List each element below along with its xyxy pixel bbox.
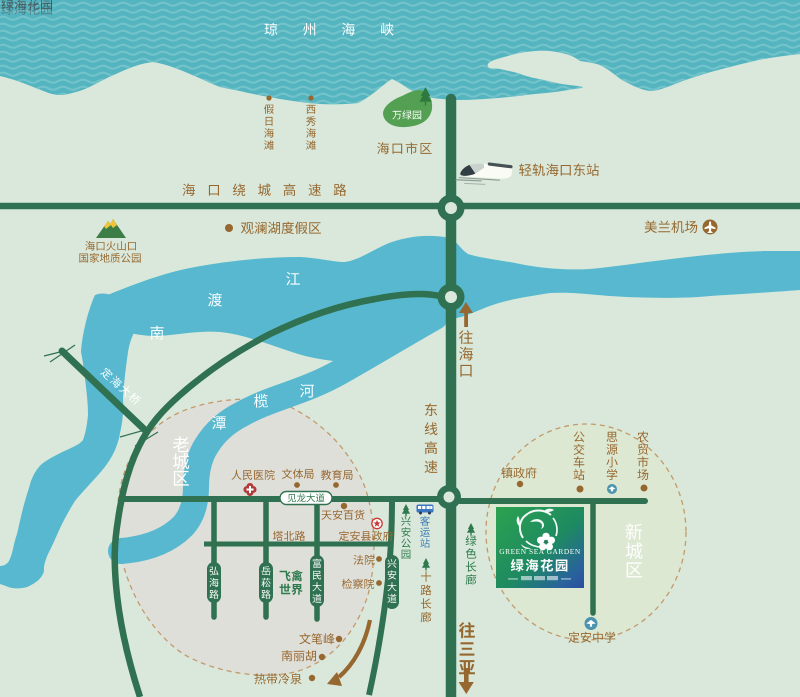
svg-text:GREEN SEA GARDEN: GREEN SEA GARDEN [499,547,581,556]
